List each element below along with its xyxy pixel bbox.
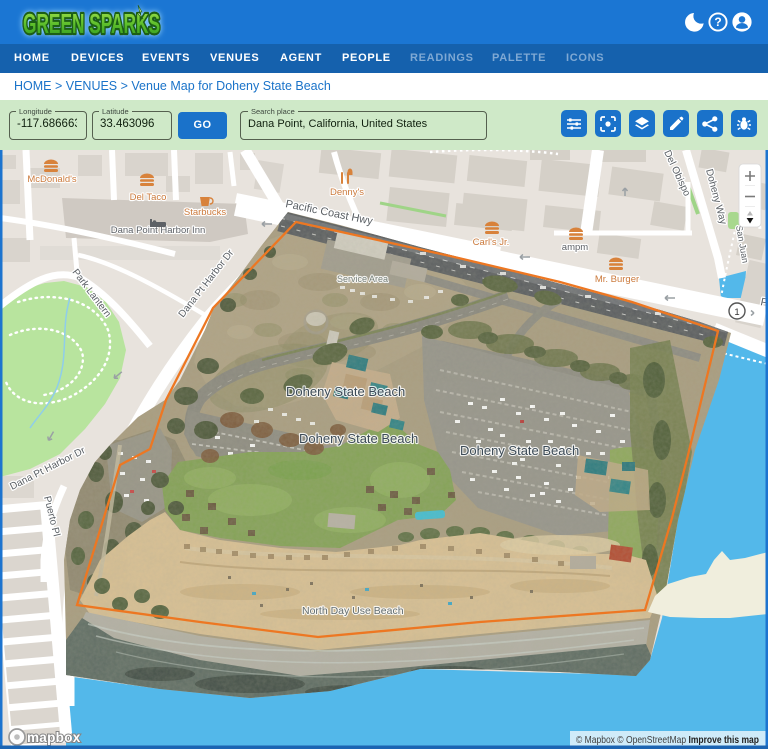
svg-text:?: ? [714, 15, 721, 29]
svg-text:North Day Use Beach: North Day Use Beach [302, 605, 404, 617]
svg-text:Service Area: Service Area [337, 274, 388, 284]
svg-text:© Mapbox © OpenStreetMap Impro: © Mapbox © OpenStreetMap Improve this ma… [576, 735, 759, 746]
svg-text:Denny's: Denny's [330, 187, 364, 198]
svg-text:Del Taco: Del Taco [130, 192, 167, 203]
svg-text:Carl's Jr.: Carl's Jr. [473, 237, 510, 248]
svg-text:Doheny State Beach: Doheny State Beach [299, 431, 418, 446]
svg-text:Mr. Burger: Mr. Burger [595, 274, 639, 285]
svg-text:Doheny State Beach: Doheny State Beach [460, 443, 579, 458]
svg-text:1: 1 [734, 307, 739, 318]
svg-text:Doheny State Beach: Doheny State Beach [286, 384, 405, 399]
svg-text:mapbox: mapbox [27, 730, 81, 745]
svg-text:Starbucks: Starbucks [184, 207, 226, 218]
svg-text:ampm: ampm [562, 242, 588, 253]
svg-text:McDonald's: McDonald's [27, 174, 77, 185]
